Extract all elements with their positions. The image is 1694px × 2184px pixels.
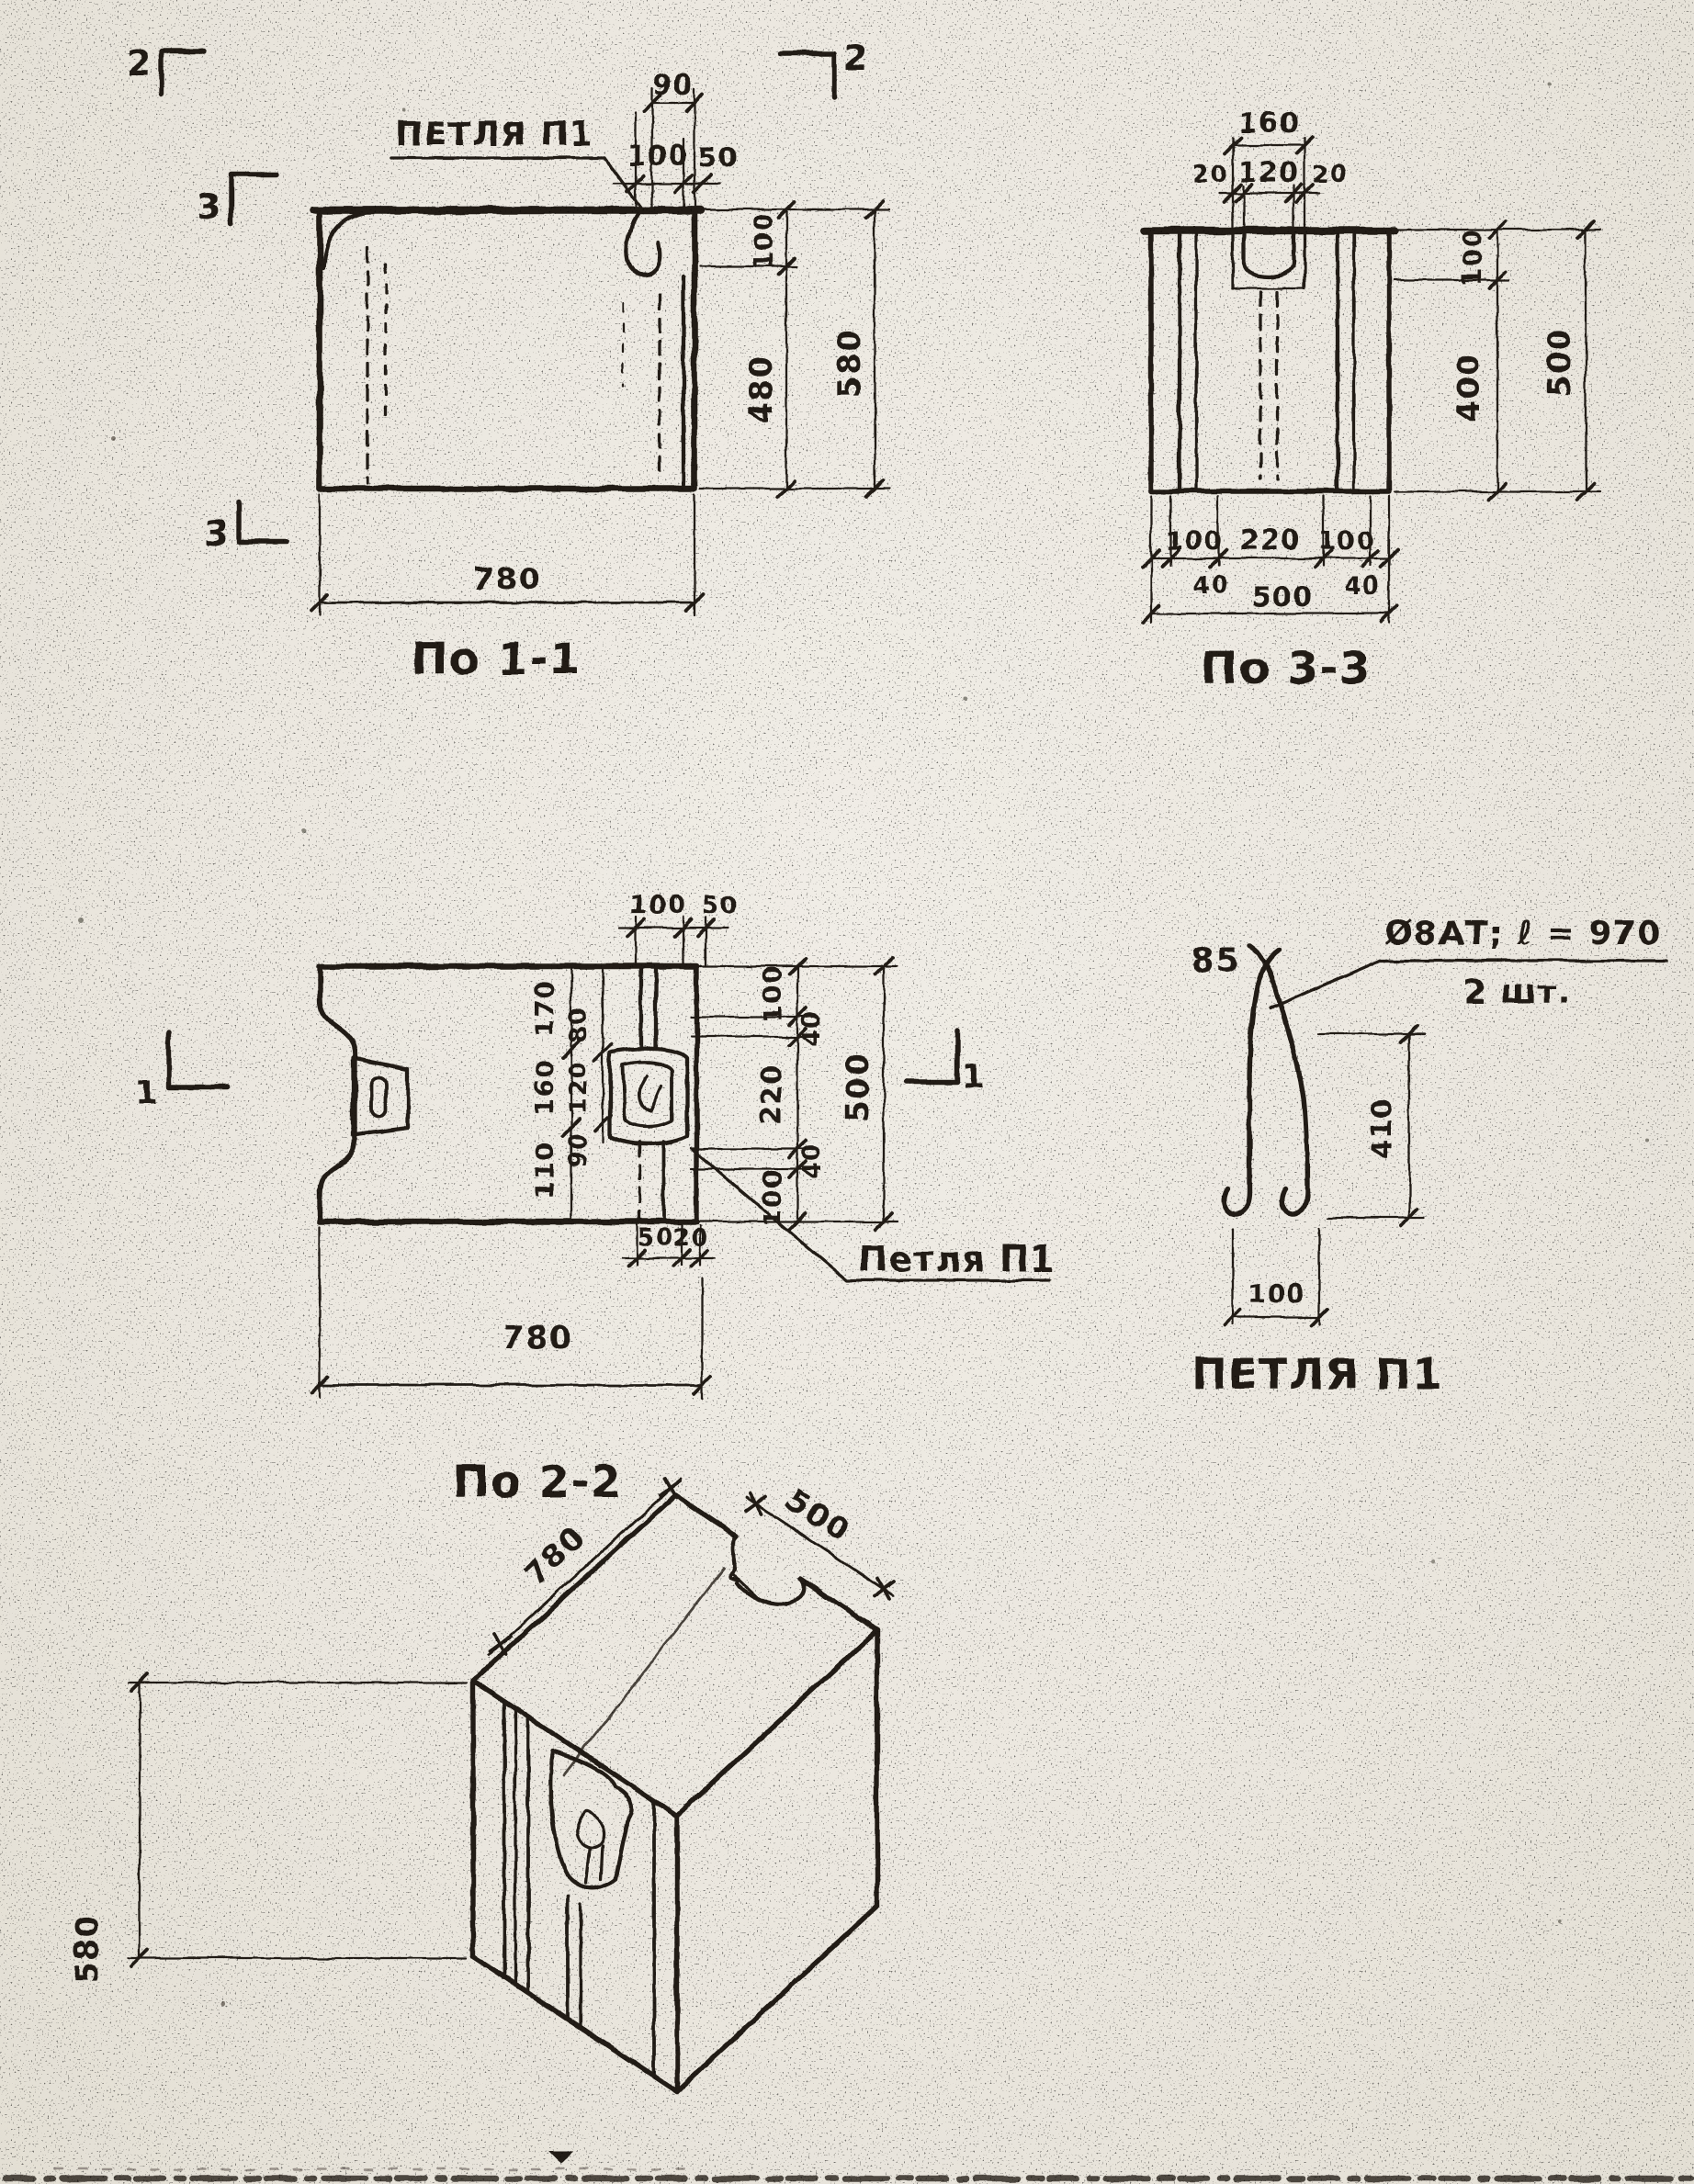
paper-grain-overlay [0,0,1694,2184]
scanned-drawing-page: 90 100 50 100 480 5 [0,0,1694,2184]
drawing-sheet: 90 100 50 100 480 5 [0,0,1694,2184]
